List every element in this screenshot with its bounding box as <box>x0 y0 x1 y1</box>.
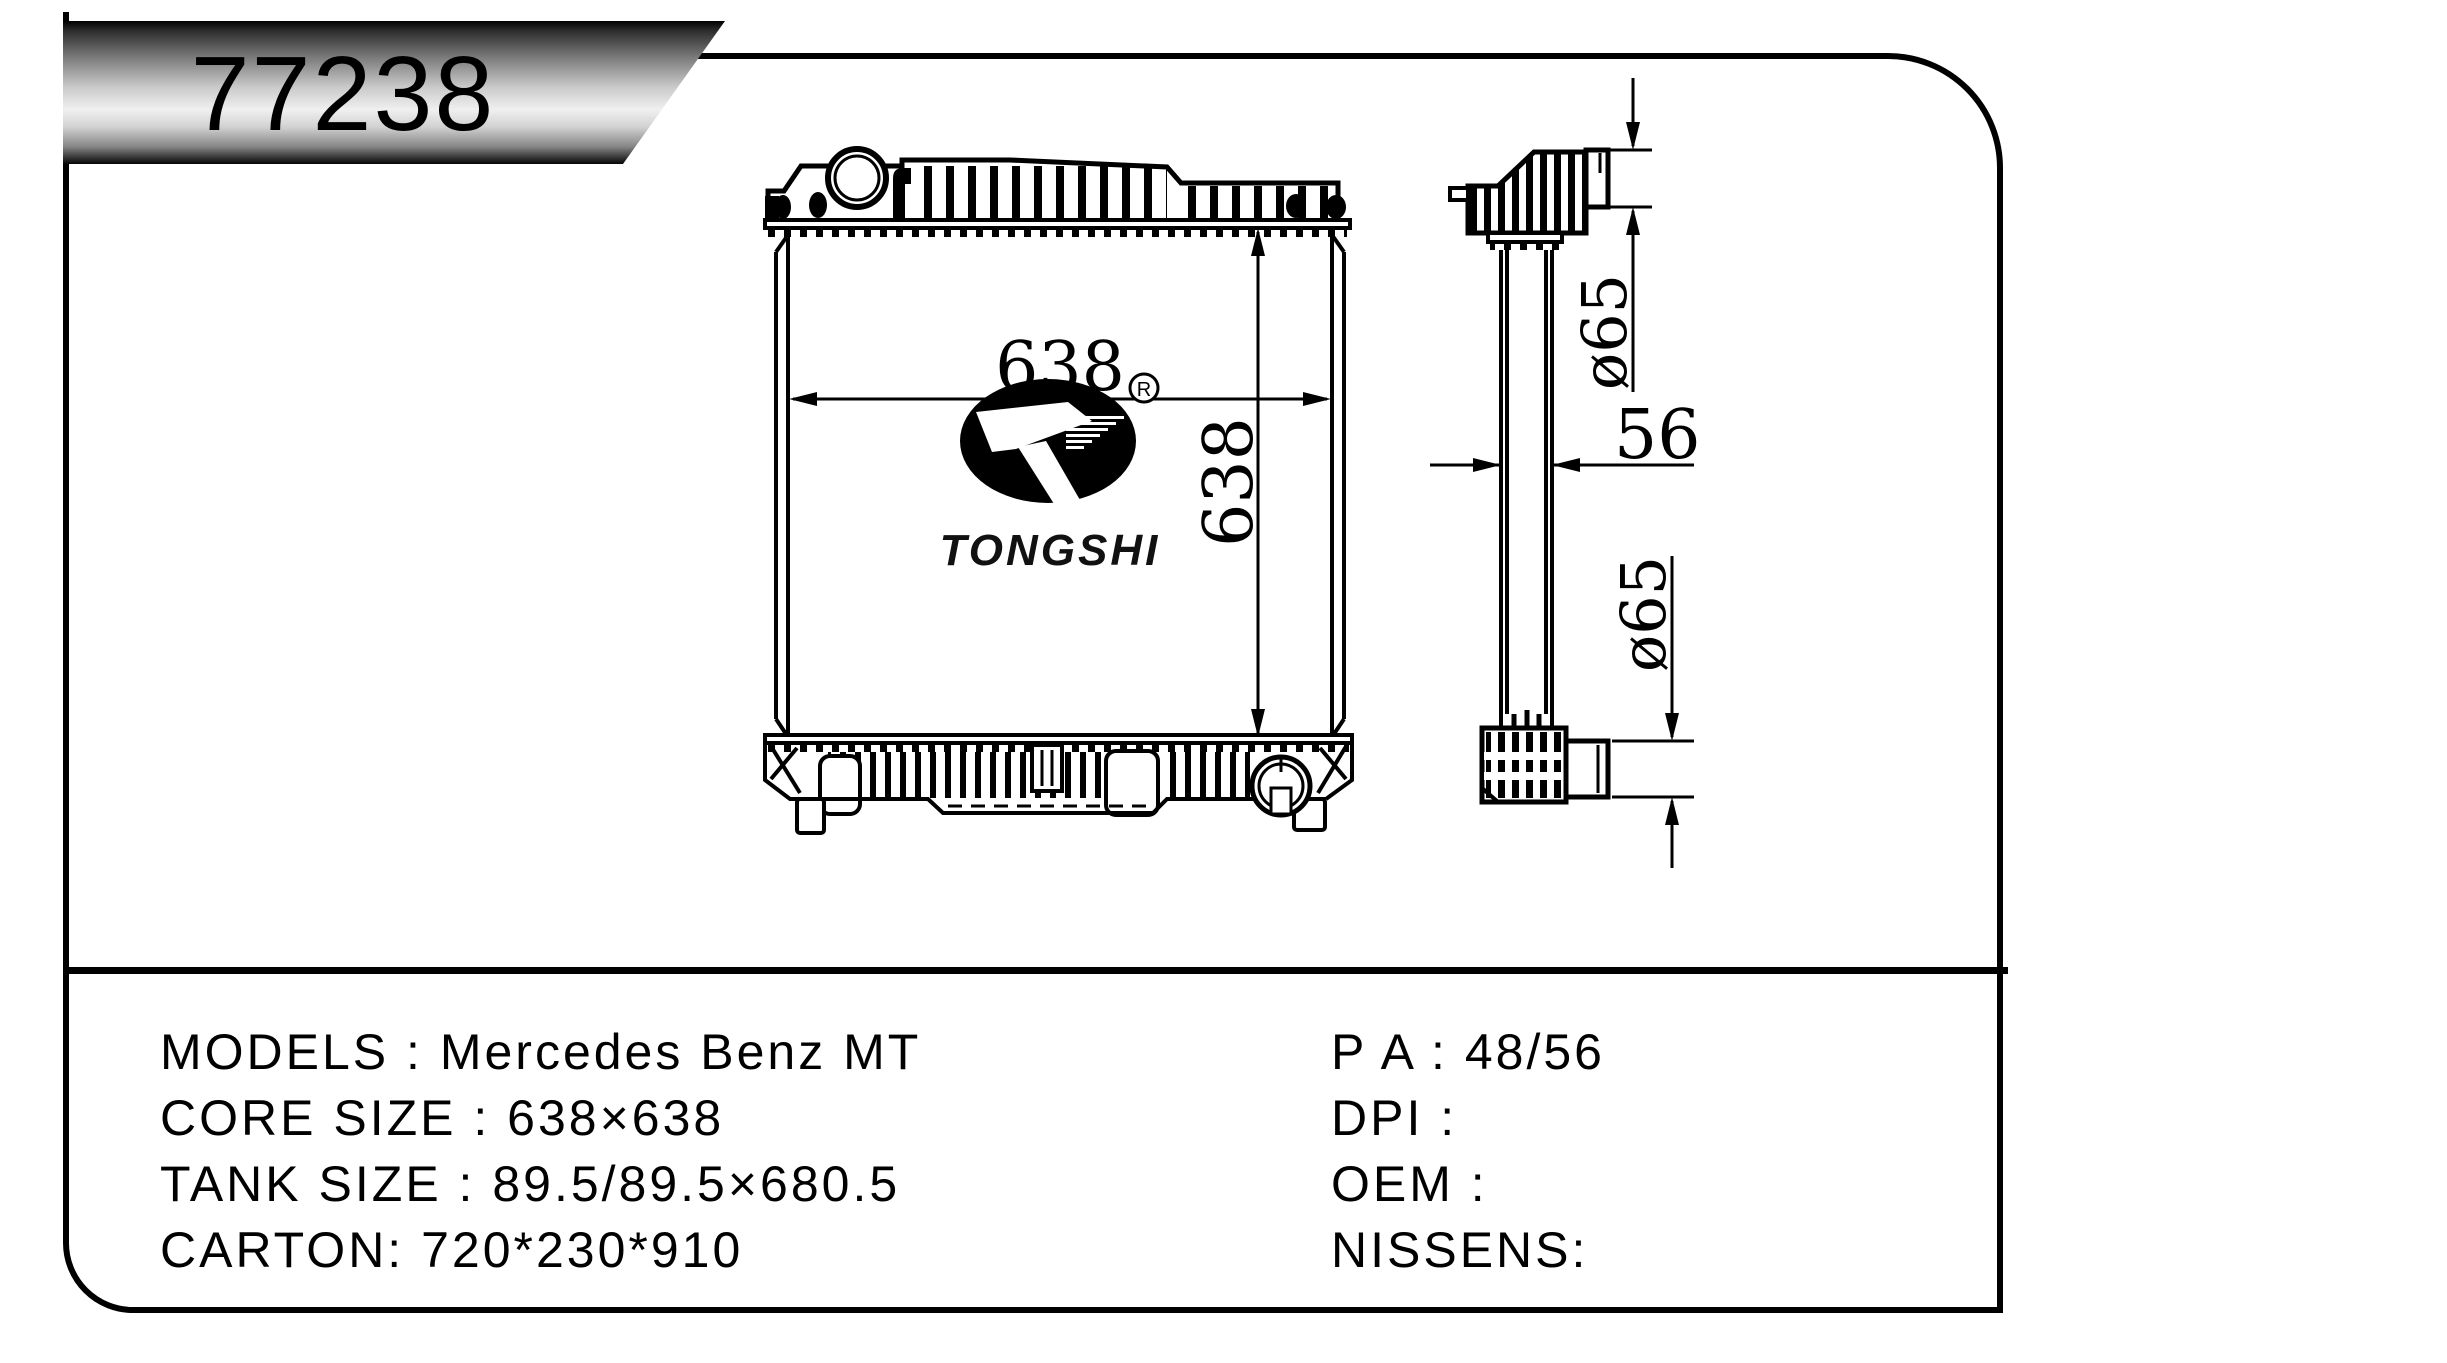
center-bracket <box>1032 745 1062 791</box>
spec-column-left: MODELS : Mercedes Benz MT CORE SIZE : 63… <box>160 1019 921 1283</box>
arrowhead-down <box>1251 709 1265 737</box>
outlet-pipe <box>1566 741 1608 797</box>
spec-row-dpi: DPI : <box>1331 1085 1605 1151</box>
spec-row-pa: P A : 48/56 <box>1331 1019 1605 1085</box>
side-flange-teeth <box>1490 242 1560 250</box>
outlet-diameter-dimension: ø65 <box>1607 556 1694 868</box>
height-dimension-label: 638 <box>1190 417 1269 547</box>
spec-row-carton: CARTON: 720*230*910 <box>160 1217 921 1283</box>
top-tank-ribs-left <box>915 166 1167 220</box>
side-top-ribs <box>1468 152 1586 233</box>
arrowhead-up <box>1665 797 1679 825</box>
spec-row-oem: OEM : <box>1331 1151 1605 1217</box>
spec-row-core-size: CORE SIZE : 638×638 <box>160 1085 921 1151</box>
bolt-blob <box>775 195 791 219</box>
drain-plug-slot <box>1271 788 1291 814</box>
top-tank-ribs-right <box>1188 186 1332 220</box>
arrowhead-right <box>1473 458 1501 472</box>
arrowhead-left <box>1552 458 1580 472</box>
inlet-pipe <box>1586 150 1608 207</box>
bolt-blob <box>1286 194 1306 218</box>
spec-row-nissens: NISSENS: <box>1331 1217 1605 1283</box>
side-flange <box>1488 233 1562 242</box>
side-bottom-pins <box>1514 710 1539 728</box>
arrowhead-left <box>789 392 817 406</box>
top-flange <box>765 220 1350 228</box>
arrowhead-up <box>1626 207 1640 235</box>
spec-row-models: MODELS : Mercedes Benz MT <box>160 1019 921 1085</box>
bolt-blob <box>1326 195 1346 219</box>
side-bottom-stripe <box>1484 772 1564 780</box>
side-top-tab <box>1450 188 1468 200</box>
height-dimension: 638 <box>1190 228 1269 737</box>
bottom-tank-ribs-left <box>828 752 1108 798</box>
tongshi-logo: R TONGSHI <box>940 374 1161 575</box>
spec-row-tank-size: TANK SIZE : 89.5/89.5×680.5 <box>160 1151 921 1217</box>
arrowhead-right <box>1303 392 1331 406</box>
top-flange-teeth <box>768 228 1347 237</box>
outlet-diameter-label: ø65 <box>1607 556 1680 672</box>
filler-neck-outer <box>828 149 886 207</box>
arrowhead-down <box>1626 122 1640 150</box>
registered-mark-letter: R <box>1137 379 1151 401</box>
thickness-dimension-label: 56 <box>1614 396 1701 475</box>
foot-left <box>797 799 824 833</box>
side-view-drawing: 56 ø65 ø65 <box>1430 78 1701 868</box>
bottom-tank-ribs-right <box>1165 752 1250 798</box>
bolt-blob <box>809 192 827 218</box>
side-core-lines <box>1501 250 1552 728</box>
catalog-page: { "badge": { "part_number": "77238" }, "… <box>0 0 2447 1363</box>
spec-column-right: P A : 48/56 DPI : OEM : NISSENS: <box>1331 1019 1605 1283</box>
bottom-flange <box>765 735 1352 743</box>
side-bottom-stripe <box>1484 752 1564 760</box>
thickness-dimension: 56 <box>1430 396 1701 475</box>
arrowhead-down <box>1665 713 1679 741</box>
logo-brand-text: TONGSHI <box>940 526 1161 575</box>
inlet-diameter-label: ø65 <box>1568 274 1641 390</box>
side-bottom-ribs <box>1486 732 1562 798</box>
